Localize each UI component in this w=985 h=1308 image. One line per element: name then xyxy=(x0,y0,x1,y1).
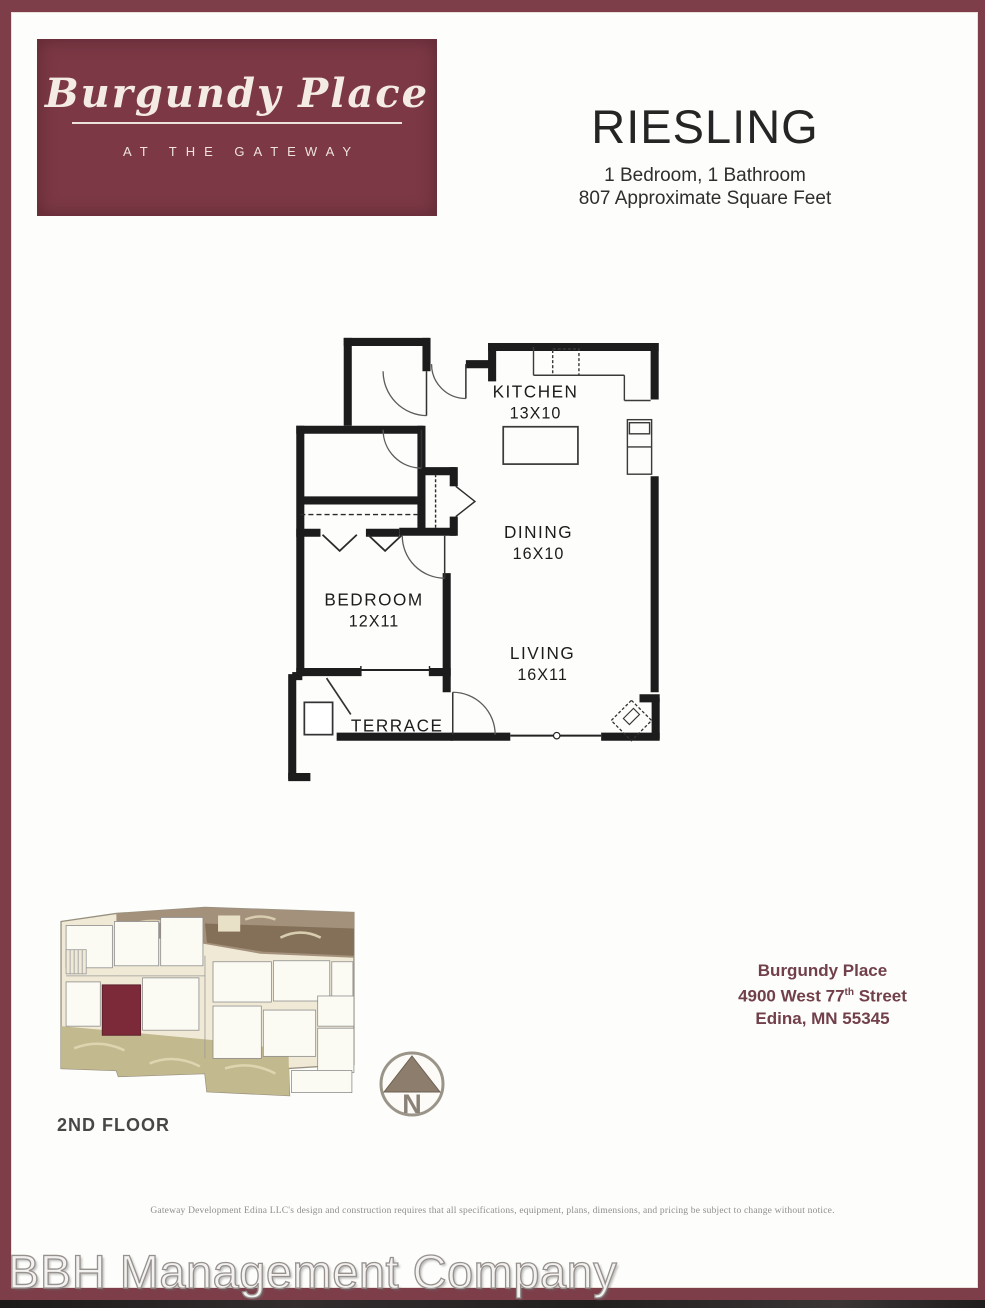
room-label-dining: DINING xyxy=(504,522,573,542)
floor-label: 2ND FLOOR xyxy=(57,1115,170,1136)
address-line2: 4900 West 77th Street xyxy=(660,982,985,1008)
north-compass: N xyxy=(372,1046,452,1126)
room-label-kitchen: KITCHEN xyxy=(493,381,579,401)
door-arcs xyxy=(383,364,495,734)
unit-specs: 1 Bedroom, 1 Bathroom 807 Approximate Sq… xyxy=(545,164,865,210)
unit-name: RIESLING xyxy=(545,102,865,152)
room-label-terrace: TERRACE xyxy=(351,716,444,736)
legal-disclaimer: Gateway Development Edina LLC's design a… xyxy=(80,1206,905,1216)
room-dims-living: 16X11 xyxy=(517,666,568,684)
brand-logo: Burgundy Place AT THE GATEWAY xyxy=(38,40,436,215)
bottom-scan-strip xyxy=(0,1300,985,1308)
brand-tagline: AT THE GATEWAY xyxy=(38,144,436,159)
kitchen-island xyxy=(503,427,578,464)
room-labels: KITCHEN 13X10 DINING 16X10 BEDROOM 12X11… xyxy=(324,381,578,735)
brand-underline xyxy=(72,122,402,124)
flyer-canvas: Burgundy Place AT THE GATEWAY RIESLING 1… xyxy=(0,0,985,1308)
address-line3: Edina, MN 55345 xyxy=(660,1008,985,1030)
compass-n-letter: N xyxy=(402,1089,422,1119)
floorplan-drawing: KITCHEN 13X10 DINING 16X10 BEDROOM 12X11… xyxy=(268,322,692,798)
room-label-bedroom: BEDROOM xyxy=(324,589,423,609)
address-line1: Burgundy Place xyxy=(660,960,985,982)
floorplan-walls xyxy=(288,338,660,779)
highlighted-unit xyxy=(102,985,140,1035)
entry-door-leaf xyxy=(456,486,475,516)
room-dims-bedroom: 12X11 xyxy=(349,613,400,631)
unit-header: RIESLING 1 Bedroom, 1 Bathroom 807 Appro… xyxy=(545,102,865,210)
room-label-living: LIVING xyxy=(510,643,575,663)
unit-beds-baths: 1 Bedroom, 1 Bathroom xyxy=(545,164,865,187)
management-company-watermark: BBH Management Company xyxy=(8,1244,617,1299)
closet-symbols xyxy=(300,474,475,551)
room-dims-kitchen: 13X10 xyxy=(510,405,562,423)
room-dims-dining: 16X10 xyxy=(513,545,565,563)
brand-name-script: Burgundy Place xyxy=(38,70,436,118)
kitchen-appliance xyxy=(553,349,579,375)
unit-sqft: 807 Approximate Square Feet xyxy=(545,187,865,210)
property-address: Burgundy Place 4900 West 77th Street Edi… xyxy=(660,960,985,1030)
siteplan-drawing xyxy=(54,897,368,1101)
